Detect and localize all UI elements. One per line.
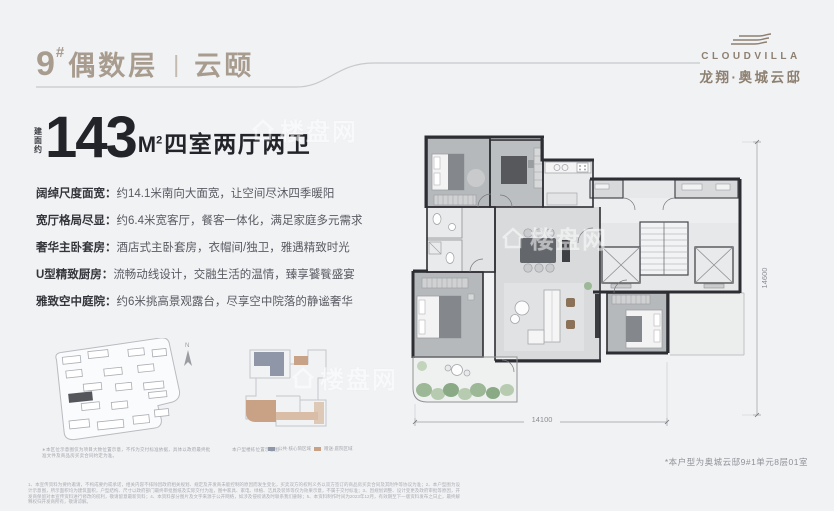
site-plan-caption: ∗本区位示意图仅为项目大致位置示意，不作为交付标准依据，具体以政府最终批准文件及… — [42, 447, 212, 459]
brand-logo: CLOUDVILLA 龙翔·奥城云邸 — [688, 32, 814, 86]
area-headline: 建 面 约 143 M2 四室两厅两卫 — [34, 112, 311, 164]
unit-footnote: *本户型为奥城云邸9#1单元8层01室 — [665, 456, 808, 468]
floor-plan: 14100 14600 — [382, 98, 782, 438]
legend-label: 赠送·庭院区域 — [324, 446, 353, 452]
key-plan-bonus-area — [246, 356, 324, 424]
header-divider-line — [34, 52, 776, 94]
elevator-right — [695, 247, 733, 288]
legend-label: 公共·核心筒区域 — [278, 446, 311, 452]
cloudvilla-logo-icon — [729, 32, 773, 48]
feature-row: 宽厅格局尽显：约6.4米宽客厅，餐客一体化，满足家庭多元需求 — [36, 208, 381, 235]
site-plan-diagram: N — [40, 338, 200, 443]
feature-row: U型精致厨房：流畅动线设计，交融生活的温情，臻享饕餮盛宴 — [36, 262, 381, 289]
svg-text:14100: 14100 — [532, 415, 553, 424]
brand-name-cn: 龙翔·奥城云邸 — [688, 66, 814, 86]
feature-row: 阔绰尺度面宽：约14.1米南向大面宽，让空间尽沐四季暖阳 — [36, 181, 381, 208]
svg-text:N: N — [185, 343, 189, 349]
area-unit: M2 — [138, 132, 162, 158]
flyer-canvas: 9#偶数层丨云颐 CLOUDVILLA 龙翔·奥城云邸 建 面 约 143 M2… — [0, 0, 834, 511]
brand-name-en: CLOUDVILLA — [688, 51, 814, 62]
svg-text:14600: 14600 — [760, 268, 769, 289]
legend-swatch-gray — [268, 447, 275, 451]
area-prefix: 建 面 约 — [34, 127, 42, 154]
elevator-left — [602, 247, 640, 288]
key-plan-core-area — [254, 352, 284, 376]
north-arrow-icon: N — [184, 343, 192, 366]
legend-swatch-tan — [314, 447, 321, 451]
feature-row: 雅致空中庭院：约6米挑高景观露台，尽享空中院落的静谧奢华 — [36, 289, 381, 316]
key-plan-diagram — [230, 340, 345, 440]
layout-text: 四室两厅两卫 — [164, 125, 311, 159]
key-plan-legend: 公共·核心筒区域 赠送·庭院区域 — [268, 446, 353, 452]
dimension-right: 14600 — [742, 140, 769, 417]
feature-row: 奢华主卧套房：酒店式主卧套房，衣帽间/独卫，雅遇精致时光 — [36, 235, 381, 262]
feature-list: 阔绰尺度面宽：约14.1米南向大面宽，让空间尽沐四季暖阳 宽厅格局尽显：约6.4… — [36, 181, 381, 316]
core-stairs — [640, 222, 688, 275]
legal-disclaimer: 1、本宣传资料为要约邀请，不构成要约或承诺，相关内容不排除因政府相关规划、规定及… — [28, 482, 460, 505]
area-number: 143 — [45, 112, 136, 164]
